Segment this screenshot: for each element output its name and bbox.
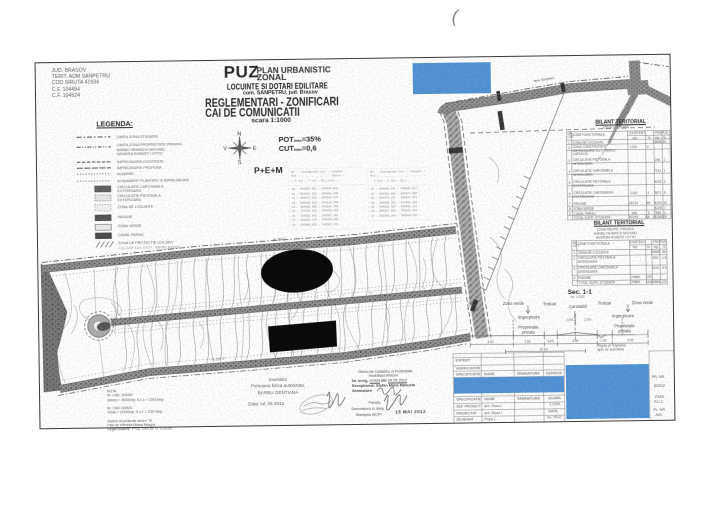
svg-text:12: 12 bbox=[423, 286, 426, 290]
svg-text:spre Sanpetru: spre Sanpetru bbox=[533, 76, 554, 83]
svg-text:Pt 284.37: Pt 284.37 bbox=[211, 356, 226, 362]
svg-text:10: 10 bbox=[369, 291, 372, 295]
svg-text:1: 1 bbox=[131, 312, 133, 316]
svg-text:2: 2 bbox=[157, 310, 159, 314]
svg-text:E: E bbox=[253, 146, 257, 152]
svg-text:5: 5 bbox=[237, 303, 239, 307]
svg-text:11: 11 bbox=[396, 288, 399, 292]
svg-text:9: 9 bbox=[343, 293, 345, 297]
svg-text:8: 8 bbox=[317, 295, 319, 299]
svg-text:13: 13 bbox=[449, 283, 452, 287]
svg-text:V: V bbox=[223, 146, 227, 152]
svg-text:N: N bbox=[237, 132, 241, 138]
svg-text:S: S bbox=[238, 160, 242, 165]
svg-text:Pt 284.2: Pt 284.2 bbox=[273, 237, 286, 242]
